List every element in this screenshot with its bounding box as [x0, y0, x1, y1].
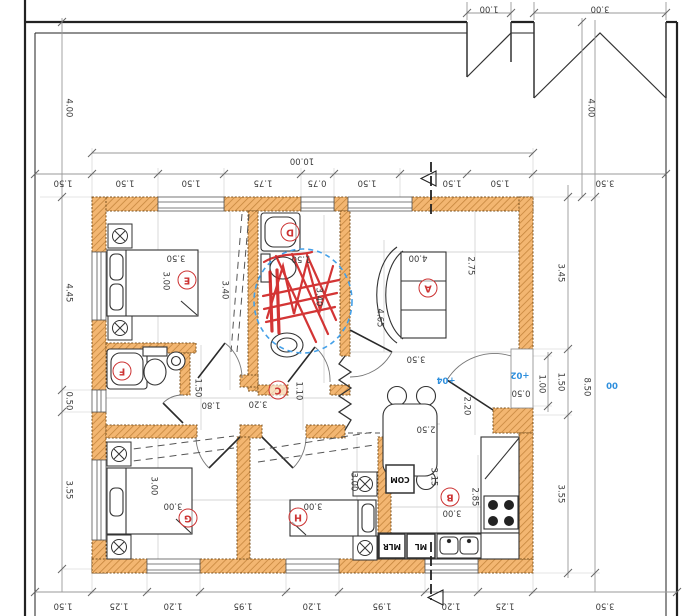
gate-symbols	[467, 22, 666, 98]
gate-small-dim: 1.00	[480, 4, 499, 13]
room-a-width-dim: 4.00	[409, 253, 428, 262]
dining-table-dim: 2.50	[417, 424, 436, 433]
kitchen-width-dim: 3.00	[443, 508, 462, 517]
room-h-width-dim: 3.00	[304, 501, 323, 510]
room-a-width2-dim: 3.50	[407, 354, 426, 363]
entry-level-outside-mark: +02	[511, 370, 530, 379]
room-g-depth-dim: 3.00	[149, 477, 158, 496]
top-chain-dim: 1.50	[116, 178, 135, 187]
left-chain-dim: 3.55	[64, 481, 73, 500]
bottom-chain-dim: 1.20	[164, 601, 183, 610]
room-label-f: F	[113, 362, 132, 381]
room-label-b: B	[441, 488, 460, 507]
room-label-d: D	[281, 223, 300, 242]
right-chain-dim: 1.50	[556, 373, 565, 392]
bottom-chain-dim: 1.95	[234, 601, 253, 610]
bottom-chain-dim: 1.25	[110, 601, 129, 610]
top-chain-dim: 1.75	[254, 178, 273, 187]
room-d-width-dim: 1.50	[292, 254, 311, 263]
top-chain-dim: 1.50	[443, 178, 462, 187]
top-chain-dim: 1.50	[182, 178, 201, 187]
appliance-mlr-label: MLR	[383, 542, 401, 550]
hall-depth-dim: 1.10	[294, 382, 303, 401]
right-chain-dim: 1.00	[537, 375, 546, 394]
floor-plan-canvas	[0, 0, 688, 616]
room-a-depth-dim: 2.75	[466, 257, 475, 276]
room-label-e: E	[178, 271, 197, 290]
kitchen-depth-dim: 3.15	[429, 468, 438, 487]
overall-width-dim: 10.00	[290, 156, 314, 165]
wc-width-dim: 1.80	[202, 400, 221, 409]
room-g-width-dim: 3.00	[164, 501, 183, 510]
room-e-closet-dim: 3.40	[220, 281, 229, 300]
bottom-chain-dim: 1.50	[54, 601, 73, 610]
bottom-chain-dim: 1.95	[373, 601, 392, 610]
top-chain-dim: 3.50	[596, 178, 615, 187]
left-chain-dim: 4.45	[64, 284, 73, 303]
room-d-depth-dim: 3.40	[314, 288, 323, 307]
wc-depth-dim: 1.50	[193, 379, 202, 398]
entry-level-inside-mark: +04	[437, 375, 456, 384]
setback-right-dim: 4.00	[586, 99, 595, 118]
bottom-chain-dim: 3.50	[596, 601, 615, 610]
room-label-a: A	[419, 279, 438, 298]
entry-door-dim: 2.20	[462, 397, 471, 416]
room-label-g: G	[179, 509, 198, 528]
top-chain-dim: 0.75	[308, 178, 327, 187]
room-h-depth-dim: 3.00	[349, 473, 358, 492]
appliance-com-label: COM	[390, 475, 409, 483]
room-e-width-dim: 3.50	[167, 253, 186, 262]
left-chain-dim: 0.50	[64, 392, 73, 411]
kitchen-depth2-dim: 2.85	[470, 488, 479, 507]
gate-large-dim: 3.00	[591, 4, 610, 13]
site-level-mark: 00	[606, 383, 618, 392]
bottom-chain-dim: 1.25	[496, 601, 515, 610]
right-chain-dim: 3.45	[556, 264, 565, 283]
room-label-c: C	[269, 381, 288, 400]
room-label-h: H	[289, 508, 308, 527]
top-chain-dim: 1.50	[491, 178, 510, 187]
room-e-depth-dim: 3.00	[161, 272, 170, 291]
setback-left-dim: 4.00	[64, 99, 73, 118]
bottom-chain-dim: 1.20	[442, 601, 461, 610]
right-chain-dim: 3.55	[556, 485, 565, 504]
appliance-ml-label: ML	[415, 542, 427, 550]
floor-plan: 1.00 3.00 4.00 4.00 10.00 8.50 00 1.50 1…	[0, 0, 688, 616]
bottom-chain-dim: 1.20	[303, 601, 322, 610]
entry-step-dim: 0.50	[512, 388, 531, 397]
overall-height-dim: 8.50	[582, 378, 591, 397]
top-chain-dim: 1.50	[358, 178, 377, 187]
top-chain-dim: 1.50	[54, 178, 73, 187]
hall-width-dim: 3.20	[249, 399, 268, 408]
room-a-sofa-dim: 4.65	[375, 309, 384, 328]
